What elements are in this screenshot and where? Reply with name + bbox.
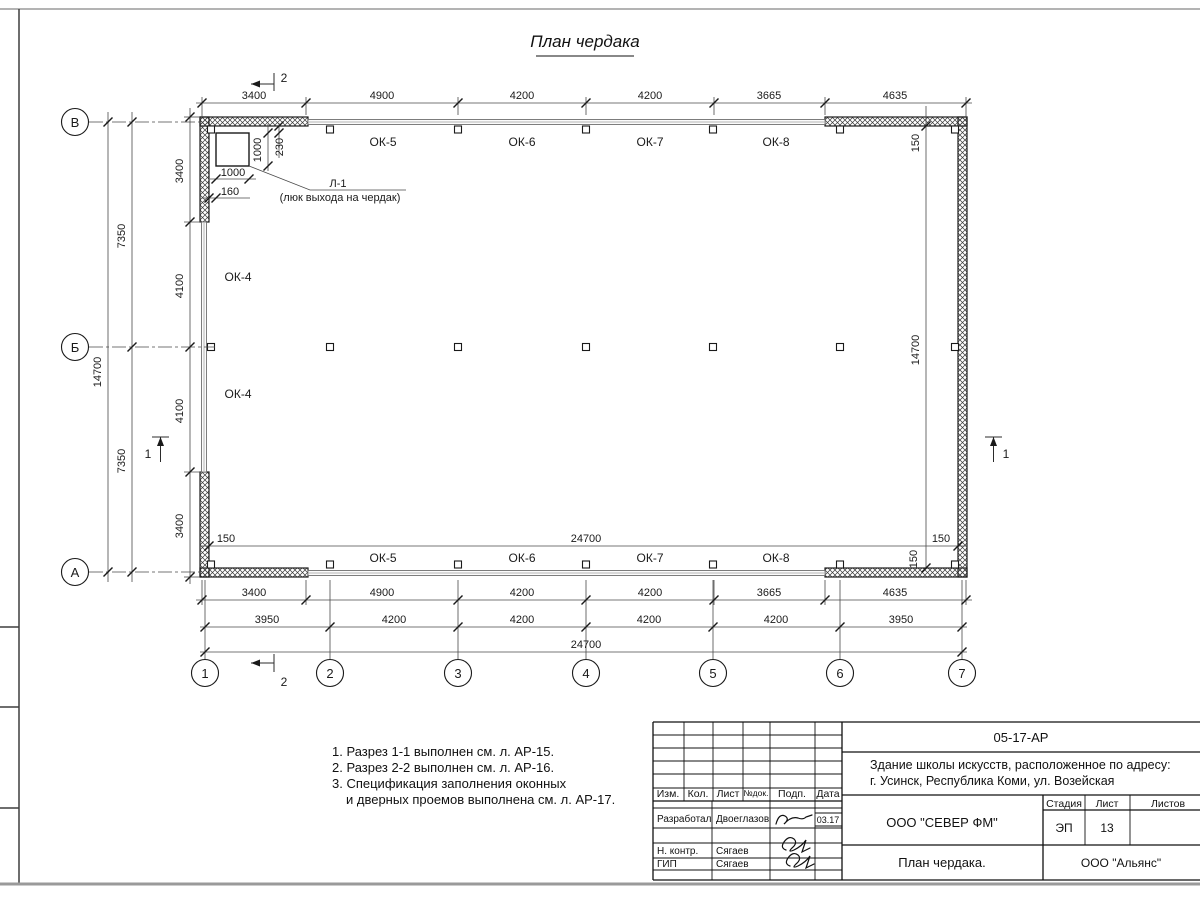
dim-label: 4200 [510, 90, 534, 102]
dim-label: 150 [932, 533, 950, 545]
dims-left: 14700 7350 7350 3400 4100 4100 3400 В Б … [62, 108, 216, 586]
dim-label: 4200 [638, 90, 662, 102]
dim-label: 3665 [757, 587, 781, 599]
dim-label: 4200 [638, 587, 662, 599]
window-label: ОК-5 [370, 551, 397, 565]
sheet-title: План чердака. [898, 855, 986, 870]
dim-label: 3665 [757, 90, 781, 102]
sheet-frame [0, 9, 1200, 884]
dims-top: 3400 4900 4200 4200 3665 4635 [196, 90, 972, 117]
dim-label: 4200 [510, 587, 534, 599]
axis-label: 2 [326, 666, 333, 681]
hatch-dim-offset: 230 [274, 138, 286, 156]
window-label: ОК-6 [509, 135, 536, 149]
col-header: Кол. [688, 788, 709, 800]
dim-label: 14700 [92, 357, 104, 388]
section-label: 2 [281, 675, 288, 689]
col-header: Подп. [778, 788, 806, 800]
doc-number: 05-17-АР [994, 730, 1049, 745]
window-label: ОК-8 [763, 135, 790, 149]
sheet-label: Лист [1096, 798, 1119, 810]
dim-label: 4200 [382, 614, 406, 626]
window-label: ОК-4 [225, 270, 252, 284]
axis-markers-left: В Б А [62, 109, 89, 586]
dim-label: 3400 [174, 159, 186, 183]
dim-label: 3400 [242, 587, 266, 599]
window-label: ОК-7 [637, 551, 664, 565]
section-label: 1 [1003, 447, 1010, 461]
dim-label: 4900 [370, 90, 394, 102]
hatch-dim-h: 1000 [221, 167, 245, 179]
dim-label: 7350 [116, 449, 128, 473]
dim-label: 4200 [637, 614, 661, 626]
project-name-line1: Здание школы искусств, расположенное по … [870, 758, 1171, 772]
section-label: 2 [281, 71, 288, 85]
binding-marks [0, 627, 19, 808]
dim-label: 4100 [174, 274, 186, 298]
dim-label: 150 [910, 134, 922, 152]
window-label: ОК-6 [509, 551, 536, 565]
axis-label: 6 [836, 666, 843, 681]
title-block-right: 05-17-АР Здание школы искусств, располож… [870, 730, 1185, 870]
col-header: №док. [744, 788, 769, 798]
dims-right-interior: 150 14700 150 [908, 106, 931, 573]
name-cell: Сягаев [716, 859, 749, 870]
axis-label: 7 [958, 666, 965, 681]
drawing-sheet: План чердака ОК-5 [0, 0, 1200, 900]
section-mark-1-left: 1 [145, 437, 169, 462]
date-cell: 03.17 [817, 815, 840, 825]
floor-plan: ОК-5 ОК-6 ОК-7 ОК-8 ОК-5 ОК-6 ОК-7 ОК-8 … [200, 117, 967, 577]
section-mark-2-bottom: 2 [251, 654, 288, 689]
title-block: Изм. Кол. Лист №док. Подп. Дата Разработ… [653, 722, 1200, 880]
name-cell: Сягаев [716, 846, 749, 857]
title-block-signature-rows: Разработал Двоеглазов 03.17 Н. контр. Ся… [657, 813, 839, 870]
hatch-dim-edge: 160 [221, 186, 239, 198]
dim-label: 4200 [510, 614, 534, 626]
stage-value: ЭП [1055, 821, 1072, 835]
sheets-label: Листов [1151, 798, 1186, 810]
col-header: Дата [816, 788, 839, 800]
stage-label: Стадия [1046, 798, 1082, 810]
col-header: Лист [717, 788, 740, 800]
dim-label: 14700 [910, 335, 922, 366]
window-label: ОК-8 [763, 551, 790, 565]
dim-label: 4200 [764, 614, 788, 626]
signature-marks [776, 815, 814, 868]
axis-label: В [71, 115, 80, 130]
window-label: ОК-5 [370, 135, 397, 149]
page-title: План чердака [530, 32, 639, 51]
col-header: Изм. [657, 788, 680, 800]
axis-label: 4 [582, 666, 589, 681]
role-cell: Разработал [657, 813, 712, 825]
axis-label: А [71, 565, 80, 580]
hatch-code: Л-1 [330, 178, 347, 190]
window-bands [202, 120, 826, 576]
note-line: 3. Спецификация заполнения оконных [332, 776, 567, 791]
hatch-leader-line [249, 166, 406, 190]
dim-label: 4635 [883, 90, 907, 102]
roof-hatch-opening [216, 133, 249, 166]
dim-label: 7350 [116, 224, 128, 248]
role-cell: Н. контр. [657, 846, 698, 857]
project-name-line2: г. Усинск, Республика Коми, ул. Возейска… [870, 774, 1114, 788]
hatch-dim-v: 1000 [252, 138, 264, 162]
axis-label: 5 [709, 666, 716, 681]
drawing-canvas: План чердака ОК-5 [0, 0, 1200, 900]
note-line: 2. Разрез 2-2 выполнен см. л. АР-16. [332, 760, 554, 775]
org-name: ООО "СЕВЕР ФМ" [886, 815, 998, 830]
dim-label: 4635 [883, 587, 907, 599]
dim-label: 24700 [571, 639, 602, 651]
dim-label: 3950 [889, 614, 913, 626]
note-line: 1. Разрез 1-1 выполнен см. л. АР-15. [332, 744, 554, 759]
client-name: ООО "Альянс" [1081, 856, 1161, 870]
section-marks: 2 2 1 1 [145, 71, 1010, 689]
axis-label: 3 [454, 666, 461, 681]
dim-label: 3400 [174, 514, 186, 538]
window-label: ОК-4 [225, 387, 252, 401]
dim-label: 3950 [255, 614, 279, 626]
hatch-desc: (люк выхода на чердак) [280, 192, 401, 204]
note-line: и дверных проемов выполнена см. л. АР-17… [346, 792, 615, 807]
sheet-number: 13 [1100, 821, 1114, 835]
roof-hatch-detail: 1000 230 1000 160 Л-1 (люк выхода на чер… [202, 122, 406, 205]
extension-lines [202, 97, 966, 117]
axis-label: 1 [201, 666, 208, 681]
section-mark-1-right: 1 [985, 437, 1010, 462]
dim-label: 4100 [174, 399, 186, 423]
section-label: 1 [145, 447, 152, 461]
dim-label: 4900 [370, 587, 394, 599]
dim-label: 24700 [571, 533, 602, 545]
notes: 1. Разрез 1-1 выполнен см. л. АР-15. 2. … [332, 744, 615, 807]
dims-interior-bottom: 150 24700 150 [200, 533, 967, 551]
axis-markers-bottom: 1 2 3 4 5 6 7 [192, 660, 976, 687]
section-mark-2-top: 2 [251, 71, 288, 91]
dim-label: 150 [908, 550, 920, 568]
dim-label: 3400 [242, 90, 266, 102]
dims-bottom: 3400 4900 4200 4200 3665 4635 3950 4200 … [192, 580, 976, 687]
role-cell: ГИП [657, 859, 677, 870]
window-label: ОК-7 [637, 135, 664, 149]
axis-label: Б [71, 340, 80, 355]
dim-label: 150 [217, 533, 235, 545]
name-cell: Двоеглазов [716, 814, 769, 825]
